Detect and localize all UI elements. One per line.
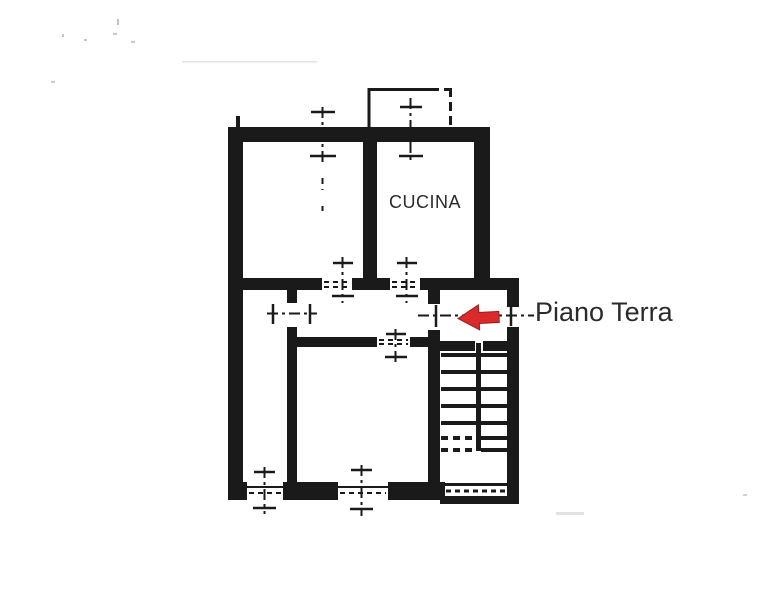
- left-wall: [228, 127, 243, 500]
- stair-divider: [476, 343, 481, 451]
- window-symbol-bottom-room: [338, 465, 388, 516]
- window-symbol-kitchen: [388, 98, 432, 164]
- corridor-bottom-wall: [410, 337, 430, 347]
- left-room-wall: [287, 290, 297, 303]
- floor-plan-page: CUCINA Piano Terra: [0, 0, 777, 600]
- bedroom-kitchen-divider: [363, 142, 377, 278]
- scan-artifacts: [51, 19, 747, 515]
- outer-walls: [228, 116, 490, 500]
- stairwell-left-wall: [428, 290, 440, 304]
- right-wall-upper: [474, 142, 490, 290]
- corner-tick: [236, 116, 240, 127]
- stairwell-right-wall: [507, 327, 519, 504]
- floor-label: Piano Terra: [535, 297, 673, 328]
- staircase: [441, 343, 507, 491]
- top-wall: [230, 127, 490, 142]
- bottom-wall: [283, 482, 338, 500]
- landing-bottom-wall: [483, 341, 519, 351]
- window-symbol-bottom-left: [247, 467, 283, 514]
- kitchen-label: CUCINA: [389, 192, 461, 213]
- stairwell-right-wall: [507, 288, 519, 307]
- door-symbol-bedroom: [324, 257, 354, 303]
- door-symbol-kitchen: [392, 257, 418, 303]
- left-room-wall: [287, 327, 297, 482]
- middle-wall: [243, 278, 519, 290]
- corridor-bottom-wall: [297, 337, 377, 347]
- window-symbol-bedroom: [300, 107, 348, 211]
- stairwell-bottom-wall: [440, 496, 519, 504]
- stairwell-left-wall: [428, 330, 440, 500]
- entry-arrow-icon: [457, 304, 499, 331]
- bottom-wall: [228, 482, 247, 500]
- landing-bottom-wall: [440, 341, 475, 351]
- stairwell-landing-edge: [443, 483, 507, 486]
- door-symbol-living-room: [379, 329, 408, 363]
- door-symbol-left-room: [267, 304, 317, 324]
